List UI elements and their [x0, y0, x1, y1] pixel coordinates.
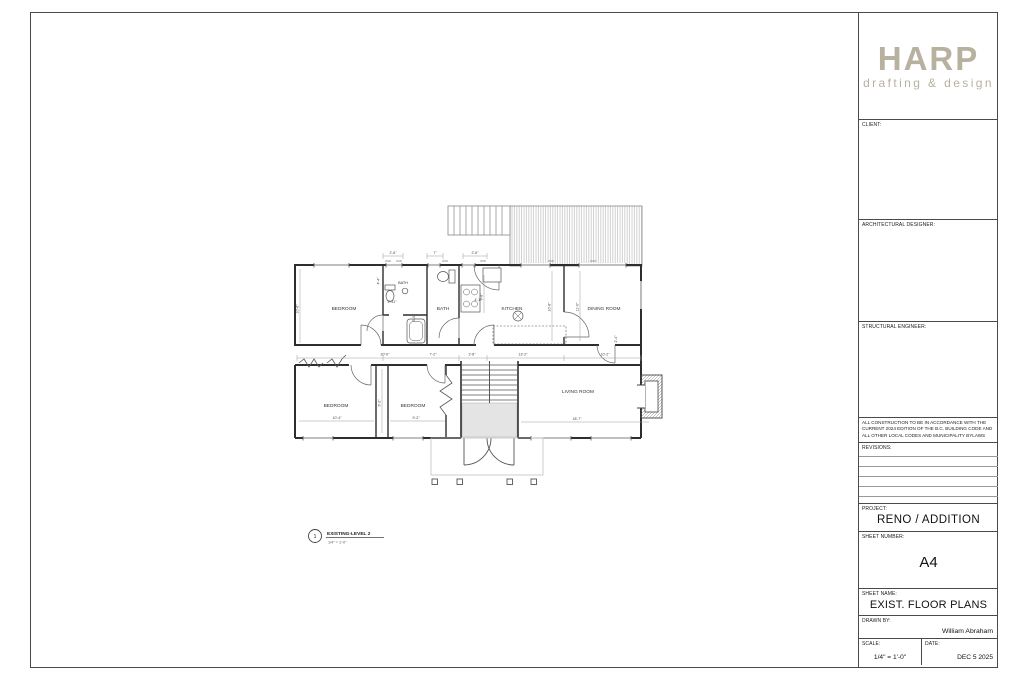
date-value: DEC 5 2025	[957, 654, 993, 661]
callout-title: EXISTING-LEVEL 2	[327, 531, 371, 537]
revision-row	[859, 466, 998, 476]
scale-label: SCALE:	[859, 639, 921, 647]
dim-label: 20'-0"	[381, 353, 391, 357]
dim-label: 9'-2"	[378, 399, 382, 407]
revision-row	[859, 486, 998, 496]
drawn-by-label: DRAWN BY:	[859, 616, 998, 624]
sink	[402, 288, 408, 294]
client-label: CLIENT:	[859, 120, 998, 128]
room-label: BEDROOM	[401, 403, 426, 409]
revisions-section: REVISIONS:	[859, 443, 998, 504]
dim-label: 13'-2"	[519, 353, 529, 357]
stair-landing	[462, 403, 517, 437]
counter-dashed	[493, 326, 566, 344]
dim-label: 4'-1"	[475, 298, 483, 302]
dim-label: 10'-8"	[296, 304, 300, 314]
bathtub-inner	[410, 322, 423, 341]
date-cell: DATE: DEC 5 2025	[922, 639, 998, 665]
revision-row	[859, 476, 998, 486]
dim-label: 7"	[433, 251, 437, 255]
code-note: ALL CONSTRUCTION TO BE IN ACCORDANCE WIT…	[859, 418, 998, 439]
dimension-labels: 2'-6" 7" 2'-6" 20'-0" 7'-2" 2'-8" 13'-2"…	[296, 251, 619, 421]
dim-label: 9'-2"	[413, 416, 421, 420]
sheet-number-section: SHEET NUMBER: A4	[859, 532, 998, 589]
drawing-sheet: BEDROOM BATH BATH KITCHEN DINING ROOM BE…	[30, 12, 998, 668]
floor-plan: BEDROOM BATH BATH KITCHEN DINING ROOM BE…	[281, 198, 681, 548]
sheet-name-section: SHEET NAME: EXIST. FLOOR PLANS	[859, 589, 998, 616]
scale-cell: SCALE: 1/4" = 1'-0"	[859, 639, 922, 665]
window-tag: 3030	[480, 259, 486, 263]
drawn-by-section: DRAWN BY: William Abraham	[859, 616, 998, 639]
dim-label: 2'-8"	[469, 353, 477, 357]
dim-label: 10'-4"	[333, 416, 343, 420]
project-value: RENO / ADDITION	[859, 514, 998, 526]
room-label: BEDROOM	[324, 403, 349, 409]
toilet-tank	[385, 285, 395, 290]
project-section: PROJECT: RENO / ADDITION	[859, 504, 998, 532]
dim-label: 18'-7"	[573, 417, 583, 421]
sheet-name-label: SHEET NAME:	[859, 589, 998, 597]
sheet-name-value: EXIST. FLOOR PLANS	[859, 599, 998, 611]
dim-label: 2'-6"	[472, 251, 480, 255]
scale-value: 1/4" = 1'-0"	[859, 654, 921, 661]
drawn-by-value: William Abraham	[942, 628, 993, 635]
window-tag: 2030	[442, 259, 448, 263]
title-block: HARP drafting & design CLIENT: ARCHITECT…	[858, 13, 998, 667]
scale-date-section: SCALE: 1/4" = 1'-0" DATE: DEC 5 2025	[859, 639, 998, 665]
porch-outline	[431, 438, 543, 485]
sheet-number-value: A4	[859, 554, 998, 571]
client-section: CLIENT:	[859, 120, 998, 220]
dim-label: 2'-11"	[388, 300, 397, 304]
logo: HARP drafting & design	[859, 13, 998, 120]
room-label: DINING ROOM	[587, 306, 620, 312]
revisions-label: REVISIONS:	[859, 443, 998, 456]
dim-label: 7'-2"	[430, 353, 438, 357]
logo-tagline: drafting & design	[863, 76, 994, 90]
window-tag: 2030	[385, 259, 391, 263]
structural-engineer-section: STRUCTURAL ENGINEER:	[859, 322, 998, 418]
date-label: DATE:	[922, 639, 998, 647]
room-label: KITCHEN	[501, 306, 523, 312]
door-arcs	[351, 265, 615, 385]
project-label: PROJECT:	[859, 504, 998, 512]
callout-number: 1	[313, 534, 316, 540]
toilet-tank	[449, 270, 455, 283]
window-tag: 3030	[548, 259, 554, 263]
entry-doors	[464, 438, 514, 465]
fireplace	[637, 375, 662, 418]
dim-label: 10'-8"	[548, 302, 552, 312]
dim-label: 2'-6"	[390, 251, 398, 255]
room-label: LIVING ROOM	[562, 389, 594, 395]
deck-hatch	[448, 206, 642, 266]
sheet-number-label: SHEET NUMBER:	[859, 532, 998, 540]
room-label: BEDROOM	[332, 306, 357, 312]
revision-row	[859, 456, 998, 466]
room-label: BATH	[398, 281, 408, 285]
dim-label: 11'-0"	[576, 302, 580, 311]
window-tag: 2030	[396, 259, 402, 263]
code-note-section: ALL CONSTRUCTION TO BE IN ACCORDANCE WIT…	[859, 418, 998, 443]
room-label: BATH	[437, 306, 450, 312]
stairs	[462, 361, 517, 403]
dim-label: 2'-4"	[614, 335, 618, 343]
drawing-callout: 1 EXISTING-LEVEL 2 1/4" = 1'-0"	[309, 530, 385, 545]
dim-label: 10'-2"	[601, 353, 611, 357]
toilet-bowl	[438, 272, 449, 282]
architectural-designer-label: ARCHITECTURAL DESIGNER:	[859, 220, 998, 228]
architectural-designer-section: ARCHITECTURAL DESIGNER:	[859, 220, 998, 322]
dim-label: 3'-0"	[412, 314, 416, 322]
logo-wordmark: HARP	[878, 42, 980, 75]
bath-kitchen-fixtures	[385, 268, 566, 344]
dim-label: 4'-4"	[377, 277, 381, 285]
porch-columns	[432, 479, 537, 485]
fridge	[483, 268, 501, 282]
callout-scale: 1/4" = 1'-0"	[328, 541, 347, 545]
structural-engineer-label: STRUCTURAL ENGINEER:	[859, 322, 998, 330]
window-tag: 4030	[590, 259, 596, 263]
